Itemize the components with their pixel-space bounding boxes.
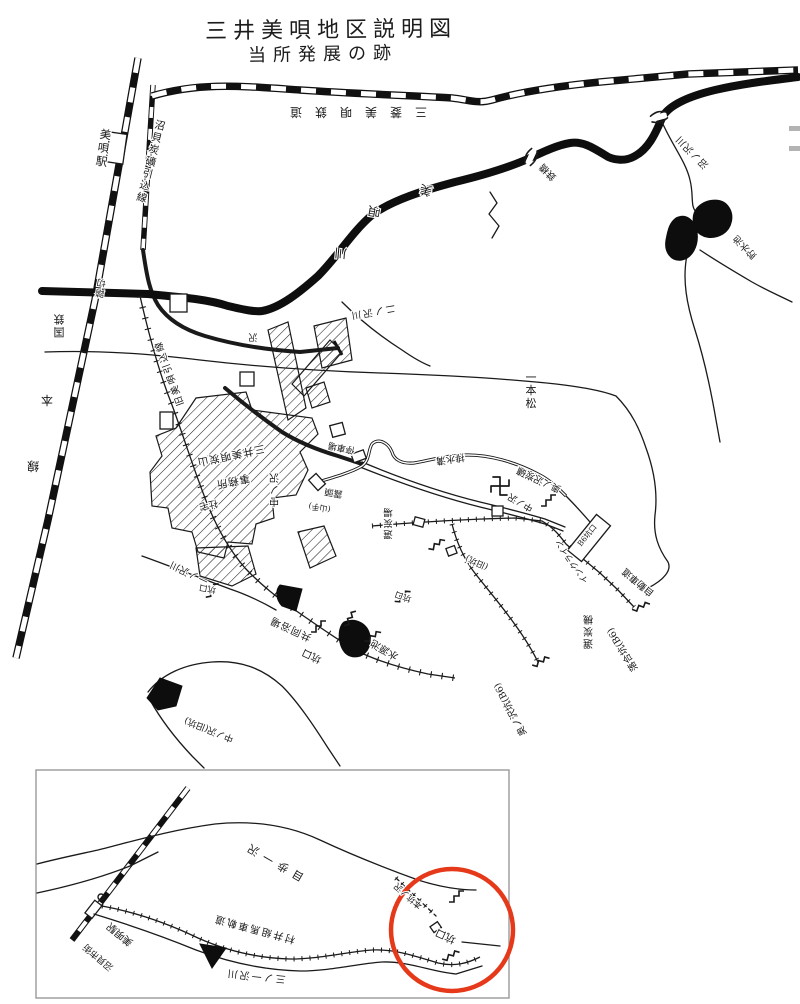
inset-railway: [72, 788, 188, 940]
mitsubishi-railway-label: 三菱美唄鉄道: [277, 105, 427, 120]
drainage-label: 排水溝: [435, 451, 465, 467]
scan-artifact-1: [789, 126, 800, 131]
river-char-1: 美: [418, 181, 434, 199]
scanned-map-page: 三井美唄地区説明図 当所発展の跡: [0, 0, 800, 1004]
jnr-label-sen: 線: [27, 459, 39, 474]
inset-town-label: 沼貝市街: [80, 941, 115, 973]
map-canvas: 美唄駅沼貝炭礦引込線三菱美唄鉄道美唄川鉄橋沼ノ沢川貯水池国鉄本線踏切旧美唄引込線…: [0, 0, 800, 1004]
temple-stream-label: 中ノ沢: [506, 491, 535, 515]
coal-plant-label: 選炭機: [583, 613, 593, 650]
river-char-2: 唄: [366, 203, 381, 220]
reservoir-pond-2: [666, 216, 698, 260]
highlight-circle-annotation: [391, 869, 513, 991]
okusawa-mine-label: 奥ノ沢坑(B6): [491, 681, 529, 738]
inset-station-label: 美唄駅: [104, 920, 135, 949]
spoil-heap-2: [339, 620, 370, 657]
inset-adit-2: [442, 948, 459, 963]
watersource-label: 水源池: [368, 637, 400, 663]
jnr-label-hon: 本: [41, 393, 53, 407]
reservoir-label: 貯水池: [730, 232, 759, 261]
nakanosawa-tram-label: 中ノ沢: [269, 471, 279, 508]
inset-cross-path: [37, 852, 158, 893]
pithead-label-1: 坑口: [300, 646, 324, 666]
yamate-label: (山手): [308, 501, 332, 515]
ochiai-mine-label: 落合坑(B6): [604, 626, 640, 674]
spoil-heap-1: [277, 585, 302, 611]
jnr-label: 国鉄: [54, 313, 65, 339]
ninosawa-stream-label: 二ノ沢川: [349, 302, 396, 322]
kyuko-label: (旧坑): [464, 552, 490, 572]
bridge-label: 鉄橋: [537, 161, 559, 183]
bridge-symbol-1: [523, 148, 539, 167]
inset-adit-1: [449, 891, 464, 902]
ipponmatsu-label: 一本松: [526, 371, 537, 410]
old-pit-label: 中ノ沢(旧坑): [183, 714, 236, 745]
small-streamlet: [489, 192, 499, 238]
southwest-valley: [142, 556, 340, 768]
inset-spoil-heap: [200, 944, 226, 968]
inset-stream-label: 目歩一沢: [240, 838, 306, 884]
okunosawa-mine-label: 奥ノ沢炭礦: [514, 464, 563, 495]
outcrop-label: 露頭: [324, 485, 344, 499]
river-char-3: 川: [334, 245, 348, 261]
stream-char: 沢: [248, 331, 257, 343]
inset-tramway-label: 村井組馬車軌道: [212, 912, 297, 946]
main-map: [16, 58, 800, 768]
siding-track: [143, 85, 342, 355]
reservoir-pond-1: [693, 200, 732, 237]
numanosawa-stream: [662, 122, 792, 442]
coal-wash-label: 選炭場: [383, 506, 393, 539]
okusawa-branch: [452, 524, 538, 662]
temple-manji-icon: [491, 477, 509, 495]
bridge-symbol-2: [650, 110, 668, 124]
scan-artifact-2: [789, 146, 800, 151]
